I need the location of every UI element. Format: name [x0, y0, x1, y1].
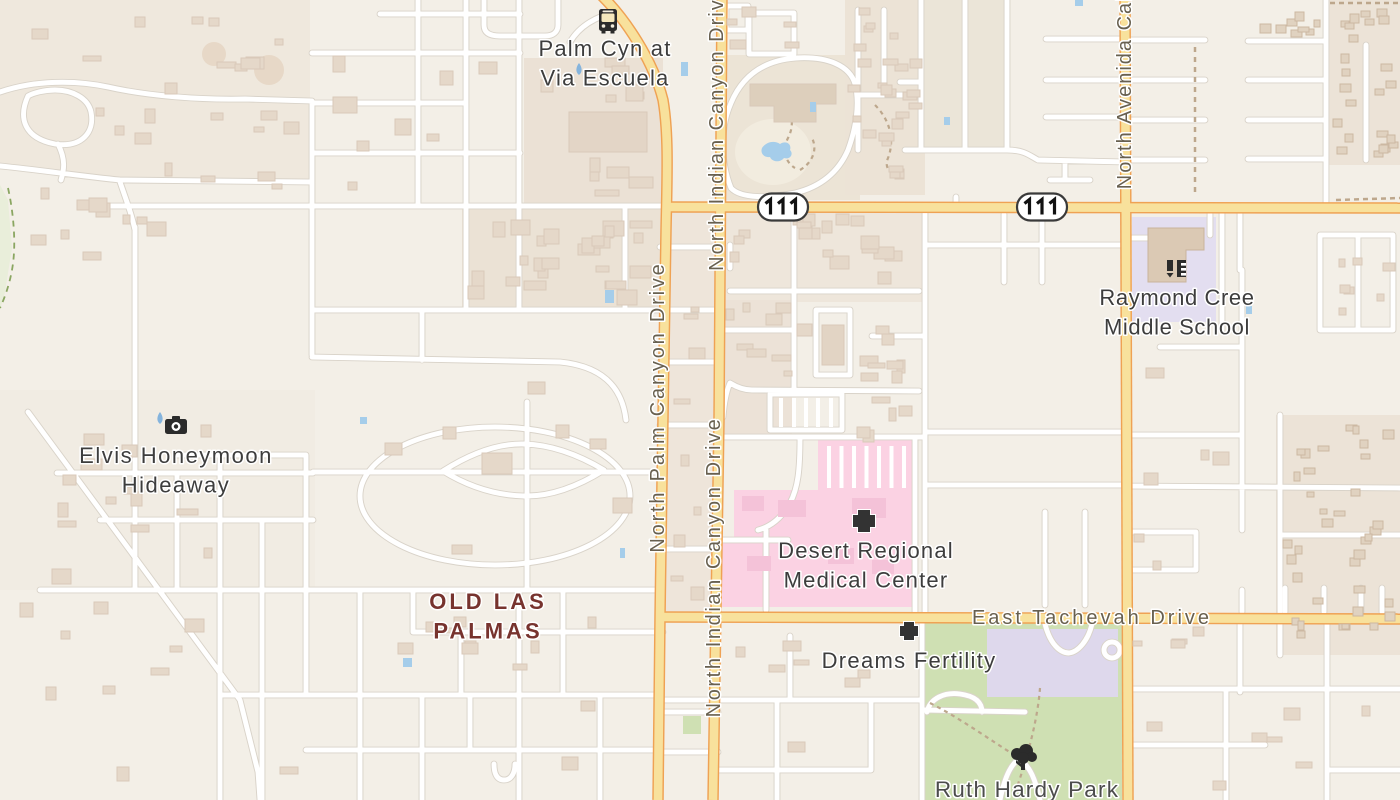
svg-text:Hideaway: Hideaway: [122, 472, 231, 497]
svg-text:Desert Regional: Desert Regional: [778, 538, 954, 563]
svg-text:Middle School: Middle School: [1104, 314, 1250, 339]
svg-text:North Indian Canyon Drive: North Indian Canyon Drive: [703, 417, 725, 718]
svg-text:Dreams Fertility: Dreams Fertility: [822, 648, 997, 673]
svg-text:PALMAS: PALMAS: [433, 618, 542, 643]
svg-text:OLD LAS: OLD LAS: [429, 589, 547, 614]
svg-text:East Tachevah Drive: East Tachevah Drive: [972, 607, 1212, 629]
svg-text:Elvis Honeymoon: Elvis Honeymoon: [79, 443, 273, 468]
svg-text:Medical Center: Medical Center: [784, 567, 949, 592]
svg-text:Palm Cyn at: Palm Cyn at: [538, 36, 671, 61]
svg-text:North Palm Canyon Drive: North Palm Canyon Drive: [647, 261, 669, 552]
svg-text:Via Escuela: Via Escuela: [541, 65, 670, 90]
svg-text:Ruth Hardy Park: Ruth Hardy Park: [935, 777, 1119, 800]
svg-text:North Avenida Caballeros: North Avenida Caballeros: [1114, 0, 1136, 189]
svg-text:North Indian Canyon Drive: North Indian Canyon Drive: [706, 0, 728, 271]
svg-text:Raymond Cree: Raymond Cree: [1099, 285, 1254, 310]
